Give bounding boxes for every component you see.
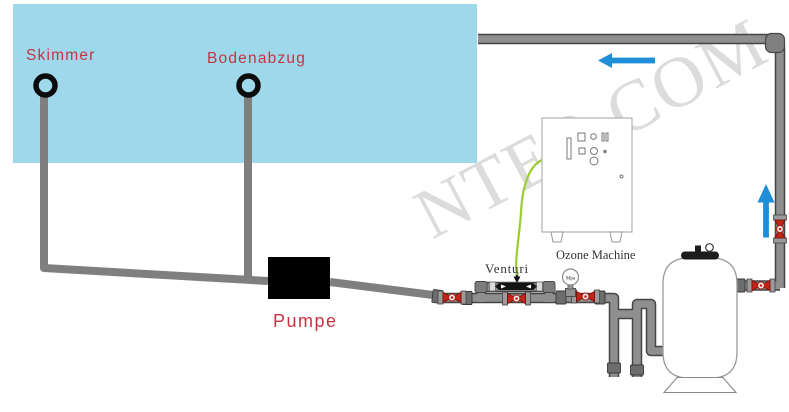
ozone-machine-foot xyxy=(551,232,563,242)
flow-arrow-up-icon xyxy=(758,184,775,238)
sand-filter-body xyxy=(663,258,737,378)
venturi-label: Venturi xyxy=(485,261,529,276)
main-line-pipe xyxy=(443,298,614,377)
ozone-machine-label: Ozone Machine xyxy=(556,248,636,262)
coupling xyxy=(608,363,621,373)
diagram-canvas: NTER.COM xyxy=(0,0,789,412)
bypass-elbow-left xyxy=(475,282,487,293)
ozone-machine-foot xyxy=(610,232,622,242)
pump-body xyxy=(268,257,330,299)
pressure-gauge-label: Mpa xyxy=(566,277,576,282)
pool-plumbing-diagram: NTER.COM xyxy=(0,0,789,412)
pump-label: Pumpe xyxy=(273,311,338,331)
skimmer-label: Skimmer xyxy=(26,47,96,64)
sand-filter xyxy=(663,244,737,393)
ozone-machine-body xyxy=(542,118,632,232)
ozone-machine xyxy=(542,118,632,242)
coupling xyxy=(556,291,566,304)
sand-filter-base xyxy=(664,378,736,393)
return-elbow-fitting xyxy=(766,34,785,53)
bodenabzug-label: Bodenabzug xyxy=(207,50,306,67)
bypass-elbow-right xyxy=(543,282,555,293)
pump-discharge-pipe xyxy=(330,282,441,296)
sand-filter-lid xyxy=(681,252,719,260)
sand-filter-clamp xyxy=(695,246,701,252)
sand-filter-gauge-icon xyxy=(706,244,714,252)
coupling xyxy=(631,365,644,375)
